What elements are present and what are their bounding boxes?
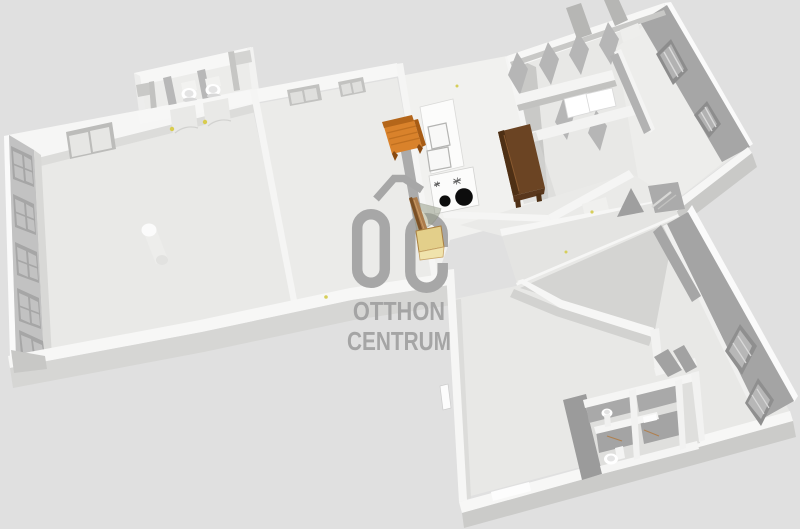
svg-text:CENTRUM: CENTRUM (347, 327, 451, 356)
svg-text:OTTHON: OTTHON (353, 297, 445, 326)
